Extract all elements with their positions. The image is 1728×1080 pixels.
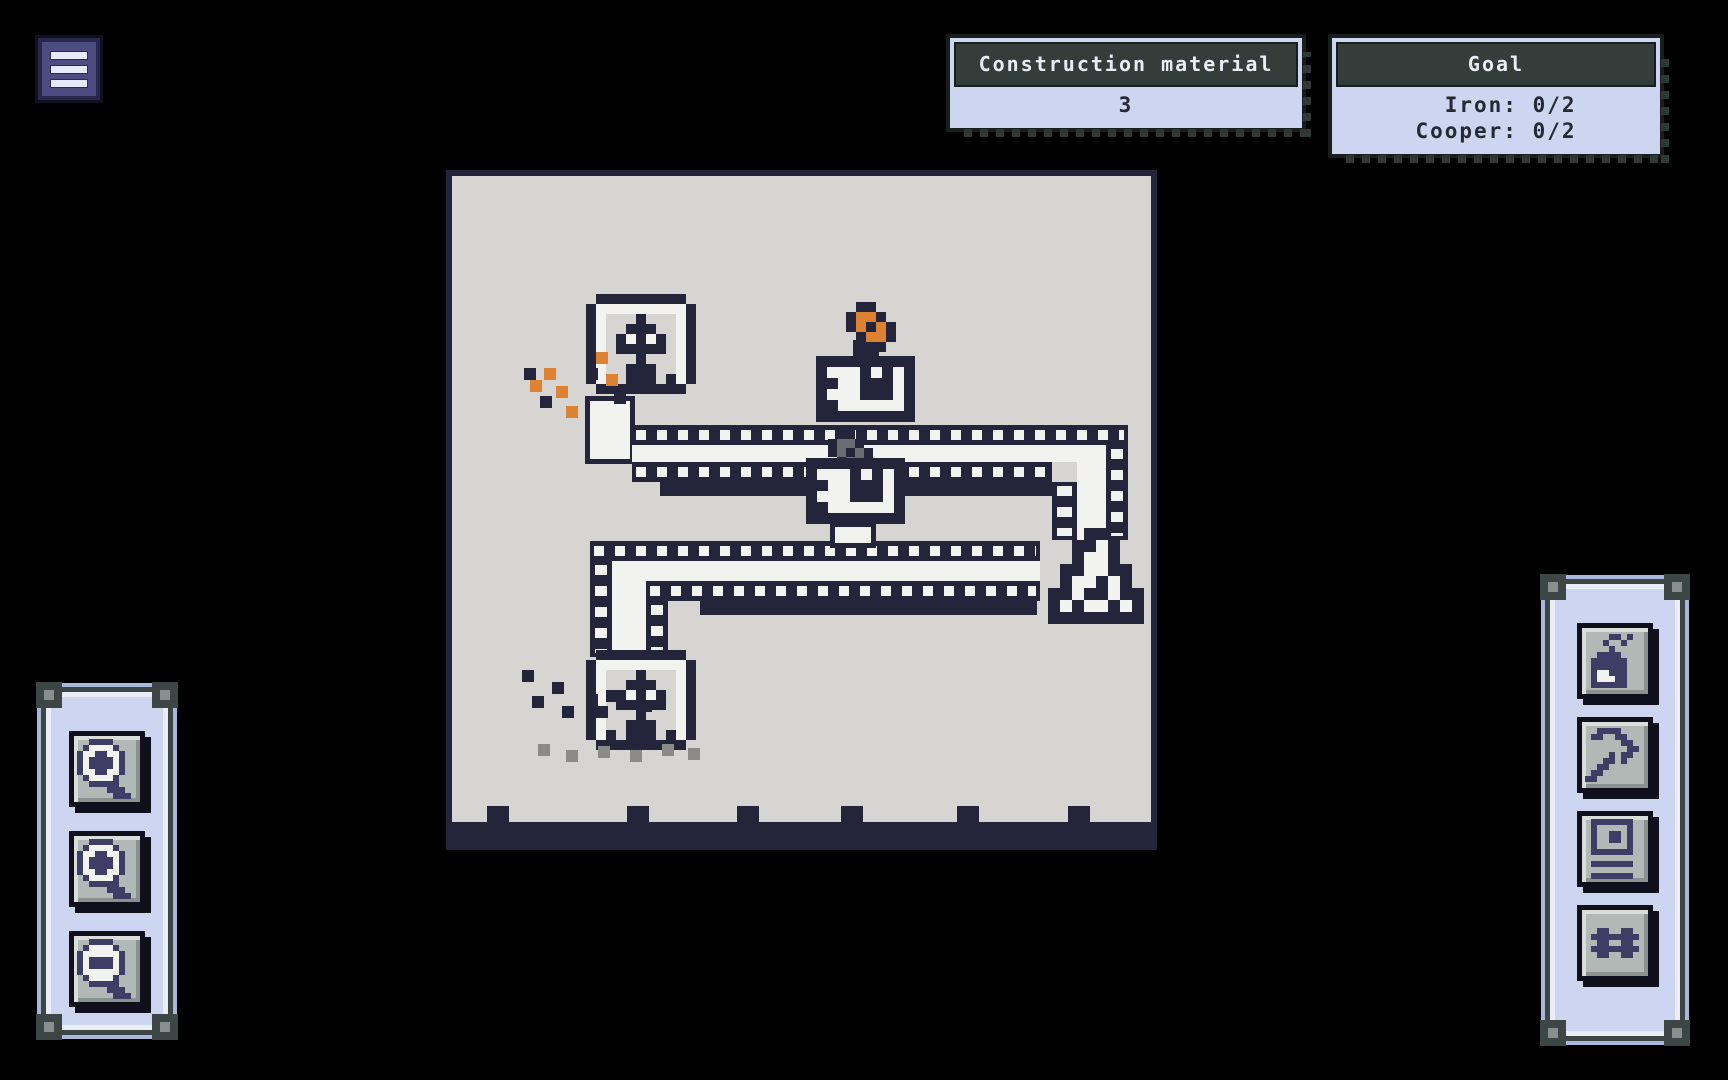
conveyor-belt[interactable] <box>590 541 1040 561</box>
panel-corner-knob <box>152 682 178 708</box>
board-edge-top <box>446 170 1157 176</box>
ore-debris-pixel <box>566 750 578 762</box>
ore-debris-pixel <box>552 682 564 694</box>
mine-tool-button[interactable] <box>1577 717 1653 793</box>
zoom-out <box>77 939 137 999</box>
conveyor-belt-surface <box>612 581 646 657</box>
zoom-in <box>77 839 137 899</box>
wall-notch <box>627 806 649 822</box>
furnace-tool-button[interactable] <box>1577 623 1653 699</box>
ore-debris-pixel <box>688 748 700 760</box>
ore-debris-pixel <box>538 744 550 756</box>
goal-title: Goal <box>1336 42 1656 87</box>
hamburger-menu-icon <box>50 51 88 60</box>
panel-corner-knob <box>1664 574 1690 600</box>
goal-cooper: Cooper: 0/2 <box>1415 118 1576 144</box>
ore-debris-pixel <box>596 352 608 364</box>
conveyor-belt[interactable] <box>590 561 612 657</box>
ore-debris-pixel <box>524 368 536 380</box>
ore-debris-pixel <box>566 406 578 418</box>
goal-panel: Goal Iron: 0/2 Cooper: 0/2 <box>1332 38 1660 154</box>
panel-corner-knob <box>1540 574 1566 600</box>
ore-debris-pixel <box>532 696 544 708</box>
construction-material-value: 3 <box>954 87 1298 124</box>
board-edge-left <box>446 170 452 850</box>
goal-iron: Iron: 0/2 <box>1415 92 1576 118</box>
zoom-toolbar <box>46 692 168 1030</box>
miner-chute <box>585 396 635 464</box>
tools-toolbar <box>1550 584 1680 1036</box>
furnace-icon <box>1585 634 1645 688</box>
ore-debris-pixel <box>556 386 568 398</box>
panel-corner-knob <box>152 1014 178 1040</box>
board-edge-right <box>1151 170 1157 850</box>
ore-debris-pixel <box>530 380 542 392</box>
game-board[interactable] <box>446 170 1157 850</box>
collector-flask[interactable] <box>1048 528 1144 624</box>
rails-icon <box>1585 928 1645 958</box>
belt-tool-button[interactable] <box>1577 905 1653 981</box>
panel-corner-knob <box>1664 1020 1690 1046</box>
zoom-in-alt-button[interactable] <box>69 831 145 907</box>
panel-corner-knob <box>36 682 62 708</box>
smelter-top[interactable] <box>816 356 915 422</box>
goal-body: Iron: 0/2 Cooper: 0/2 <box>1336 87 1656 150</box>
ore-debris-pixel <box>586 694 598 706</box>
ore-debris-pixel <box>596 706 608 718</box>
panel-corner-knob <box>36 1014 62 1040</box>
conveyor-belt[interactable] <box>632 425 1128 445</box>
conveyor-belt[interactable] <box>646 601 668 657</box>
smelter-bottom[interactable] <box>806 458 905 524</box>
zoom-in-button[interactable] <box>69 731 145 807</box>
panel-corner-knob <box>1540 1020 1566 1046</box>
chest-icon <box>1585 819 1645 879</box>
game-screen: Construction material 3 Goal Iron: 0/2 C… <box>0 0 1728 1080</box>
conveyor-belt[interactable] <box>1106 445 1128 540</box>
wall-notch <box>957 806 979 822</box>
ore-debris-pixel <box>606 374 618 386</box>
ore-debris-pixel <box>598 746 610 758</box>
ore-debris-pixel <box>586 368 598 380</box>
wall-notch <box>841 806 863 822</box>
storage-tool-button[interactable] <box>1577 811 1653 887</box>
copper-ore-icon <box>846 302 896 352</box>
wall-notch <box>1068 806 1090 822</box>
wall-notch <box>737 806 759 822</box>
board-bottom-wall <box>446 822 1157 850</box>
ore-debris-pixel <box>640 700 652 712</box>
ore-debris-pixel <box>630 750 642 762</box>
ore-debris-pixel <box>540 396 552 408</box>
menu-button[interactable] <box>38 38 100 100</box>
construction-material-panel: Construction material 3 <box>950 38 1302 128</box>
pickaxe-icon <box>1585 728 1645 782</box>
ore-debris-pixel <box>662 744 674 756</box>
conveyor-belt[interactable] <box>646 581 1040 601</box>
ore-debris-pixel <box>606 690 618 702</box>
conveyor-belt-surface <box>612 561 1040 581</box>
ore-debris-pixel <box>522 670 534 682</box>
ore-debris-pixel <box>544 368 556 380</box>
zoom-in <box>77 739 137 799</box>
machine-chute <box>830 522 876 548</box>
construction-material-title: Construction material <box>954 42 1298 87</box>
conveyor-shadow <box>700 601 1037 615</box>
ore-debris-pixel <box>614 392 626 404</box>
zoom-out-button[interactable] <box>69 931 145 1007</box>
ore-debris-pixel <box>562 706 574 718</box>
wall-notch <box>487 806 509 822</box>
